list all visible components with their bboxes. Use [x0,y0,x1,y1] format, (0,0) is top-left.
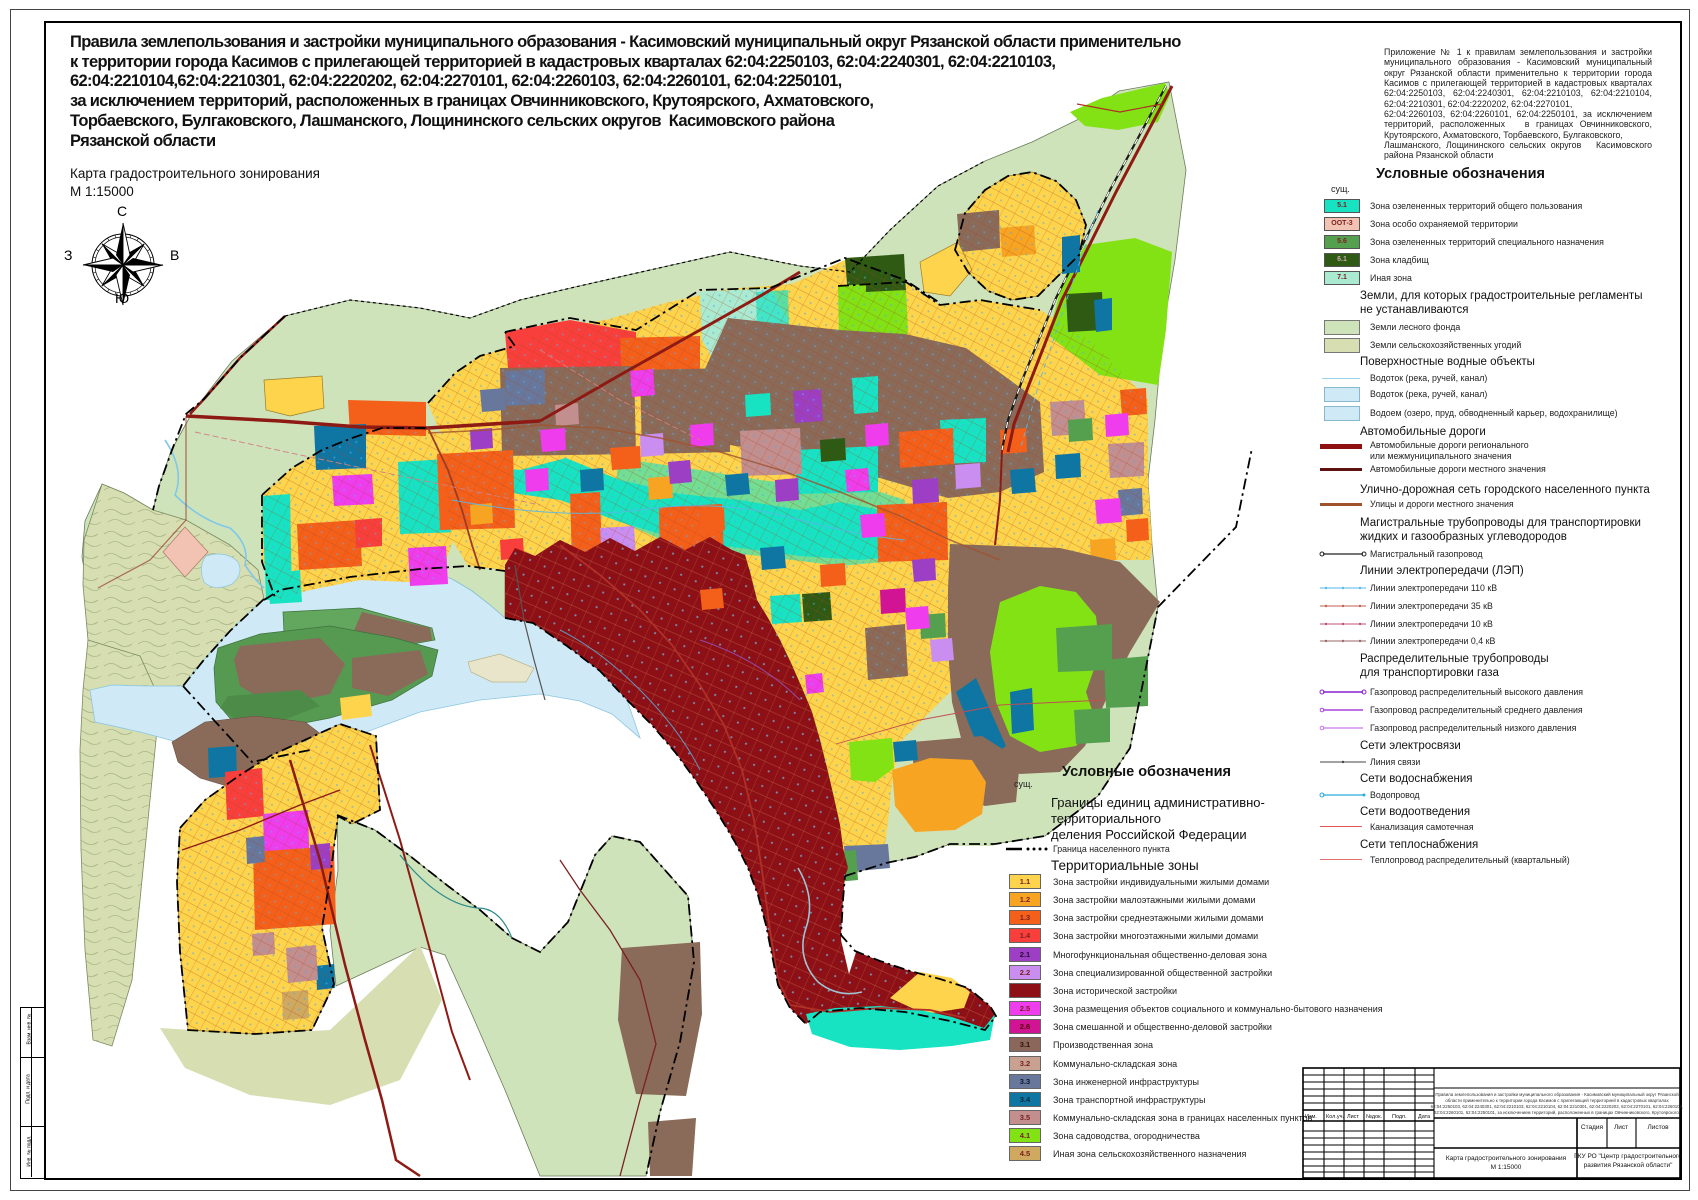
svg-text:Карта градостроительного зонир: Карта градостроительного зонирования [1446,1155,1567,1162]
svg-text:62:04:2260101, 62:04:2250101,: 62:04:2260101, 62:04:2250101, за исключе… [1434,1110,1680,1115]
svg-text:Лист: Лист [1614,1124,1628,1131]
svg-text:Изм.: Изм. [1305,1114,1317,1120]
svg-text:Кол.уч.: Кол.уч. [1326,1114,1344,1120]
svg-text:Подп.: Подп. [1392,1114,1407,1120]
svg-text:ГКУ РО "Центр градостроительно: ГКУ РО "Центр градостроительного [1574,1153,1682,1160]
svg-text:Лист: Лист [1347,1114,1359,1120]
svg-text:62:04:2250103, 62:04:2240301,: 62:04:2250103, 62:04:2240301, 62:04:2210… [1431,1104,1684,1109]
svg-text:области применительно к террит: области применительно к территории город… [1445,1098,1669,1103]
svg-text:Правила землепользования и зас: Правила землепользования и застройки мун… [1435,1092,1679,1097]
svg-text:№док.: №док. [1366,1114,1383,1120]
svg-text:Листов: Листов [1647,1124,1669,1131]
svg-text:развития Рязанской области": развития Рязанской области" [1584,1161,1674,1169]
svg-text:Стадия: Стадия [1581,1124,1604,1131]
svg-text:М 1:15000: М 1:15000 [1491,1164,1522,1171]
svg-text:Дата: Дата [1418,1114,1431,1120]
